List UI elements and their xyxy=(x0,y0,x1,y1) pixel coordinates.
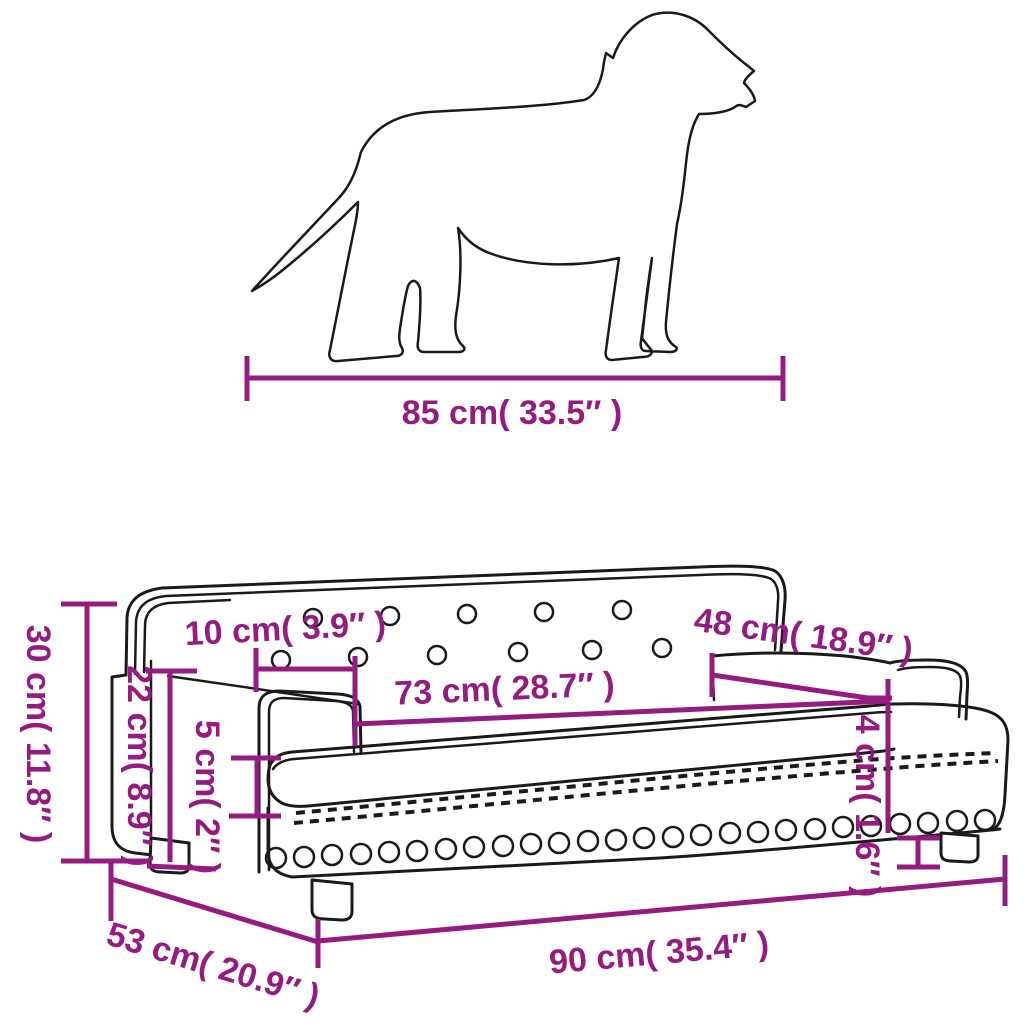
dimension-diagram: 85 cm( 33.5″ ) xyxy=(0,0,1024,1024)
dim-30-label: 30 cm( 11.8″ ) xyxy=(19,625,57,844)
sofa-leg-front-right xyxy=(941,833,978,862)
dim-4-label: 4 cm( 1.6″ ) xyxy=(848,715,886,898)
sofa-leg-front-left xyxy=(312,880,352,920)
dim-22-label: 22 cm( 8.9″ ) xyxy=(120,665,158,867)
dim-5-label: 5 cm( 2″ ) xyxy=(188,720,226,874)
dim-85-label: 85 cm( 33.5″ ) xyxy=(402,394,622,432)
